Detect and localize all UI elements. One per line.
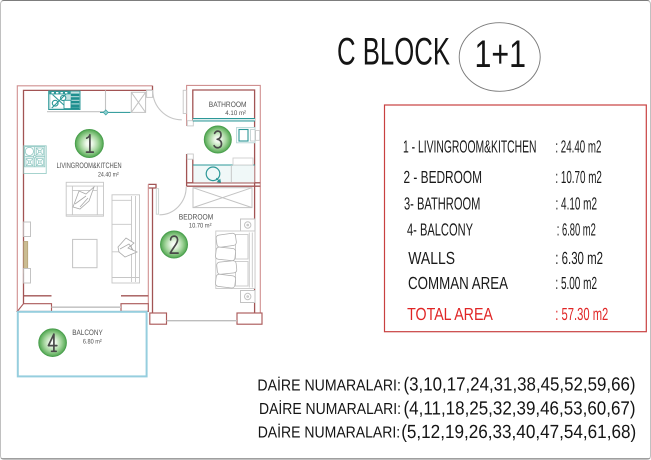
svg-text:4- BALCONY: 4- BALCONY [407,220,473,240]
svg-text:: 10.70 m2: : 10.70 m2 [555,167,602,187]
svg-text:: 6.30 m2: : 6.30 m2 [555,248,603,268]
svg-text:LIVINGROOM&KITCHEN: LIVINGROOM&KITCHEN [57,161,122,170]
svg-text:BALCONY: BALCONY [72,328,103,337]
svg-text:6.80 m²: 6.80 m² [83,339,103,346]
svg-text:2 - BEDROOM: 2 - BEDROOM [404,167,483,187]
svg-text:BATHROOM: BATHROOM [209,100,247,109]
svg-text:(5,12,19,26,33,40,47,54,61,68): (5,12,19,26,33,40,47,54,61,68) [401,422,636,443]
svg-text:COMMAN AREA: COMMAN AREA [408,273,508,293]
svg-text:BEDROOM: BEDROOM [179,213,214,222]
svg-text:(3,10,17,24,31,38,45,52,59,66): (3,10,17,24,31,38,45,52,59,66) [404,375,636,396]
svg-text:: 6.80 m2: : 6.80 m2 [557,220,596,240]
svg-text:1 - LIVINGROOM&KITCHEN: 1 - LIVINGROOM&KITCHEN [403,137,537,157]
svg-text:1+1: 1+1 [475,33,527,76]
svg-text:TOTAL AREA: TOTAL AREA [407,304,493,324]
svg-text:: 24.40 m2: : 24.40 m2 [555,137,601,157]
svg-text:DAİRE NUMARALARI:: DAİRE NUMARALARI: [259,400,401,418]
svg-text:(4,11,18,25,32,39,46,53,60,67): (4,11,18,25,32,39,46,53,60,67) [404,398,636,419]
svg-text:DAİRE NUMARALARI:: DAİRE NUMARALARI: [257,376,401,394]
svg-text:10.70 m²: 10.70 m² [189,223,212,230]
svg-text:WALLS: WALLS [408,248,455,268]
svg-text:: 57.30 m2: : 57.30 m2 [555,304,608,324]
svg-text:4.10 m²: 4.10 m² [225,110,247,117]
svg-text:DAİRE NUMARALARI:: DAİRE NUMARALARI: [258,424,401,442]
svg-text:3- BATHROOM: 3- BATHROOM [404,194,480,214]
svg-text:C BLOCK: C BLOCK [337,30,450,73]
svg-text:: 5.00 m2: : 5.00 m2 [555,273,597,293]
svg-text:24.40 m²: 24.40 m² [98,171,119,178]
svg-text:: 4.10 m2: : 4.10 m2 [556,194,598,214]
